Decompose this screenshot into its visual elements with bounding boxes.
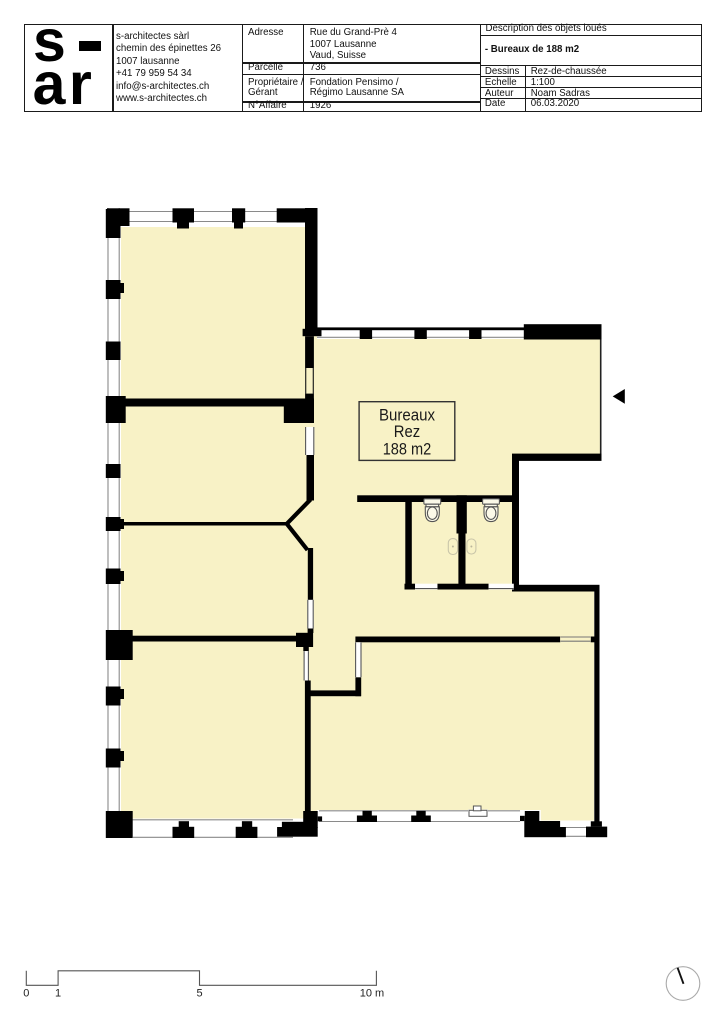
svg-text:Bureaux: Bureaux (379, 406, 436, 424)
svg-text:1: 1 (55, 988, 61, 1000)
svg-text:Rez: Rez (394, 423, 420, 441)
svg-text:10 m: 10 m (360, 988, 384, 1000)
svg-text:0: 0 (23, 988, 29, 1000)
svg-text:5: 5 (196, 988, 202, 1000)
svg-text:188 m2: 188 m2 (383, 441, 432, 459)
